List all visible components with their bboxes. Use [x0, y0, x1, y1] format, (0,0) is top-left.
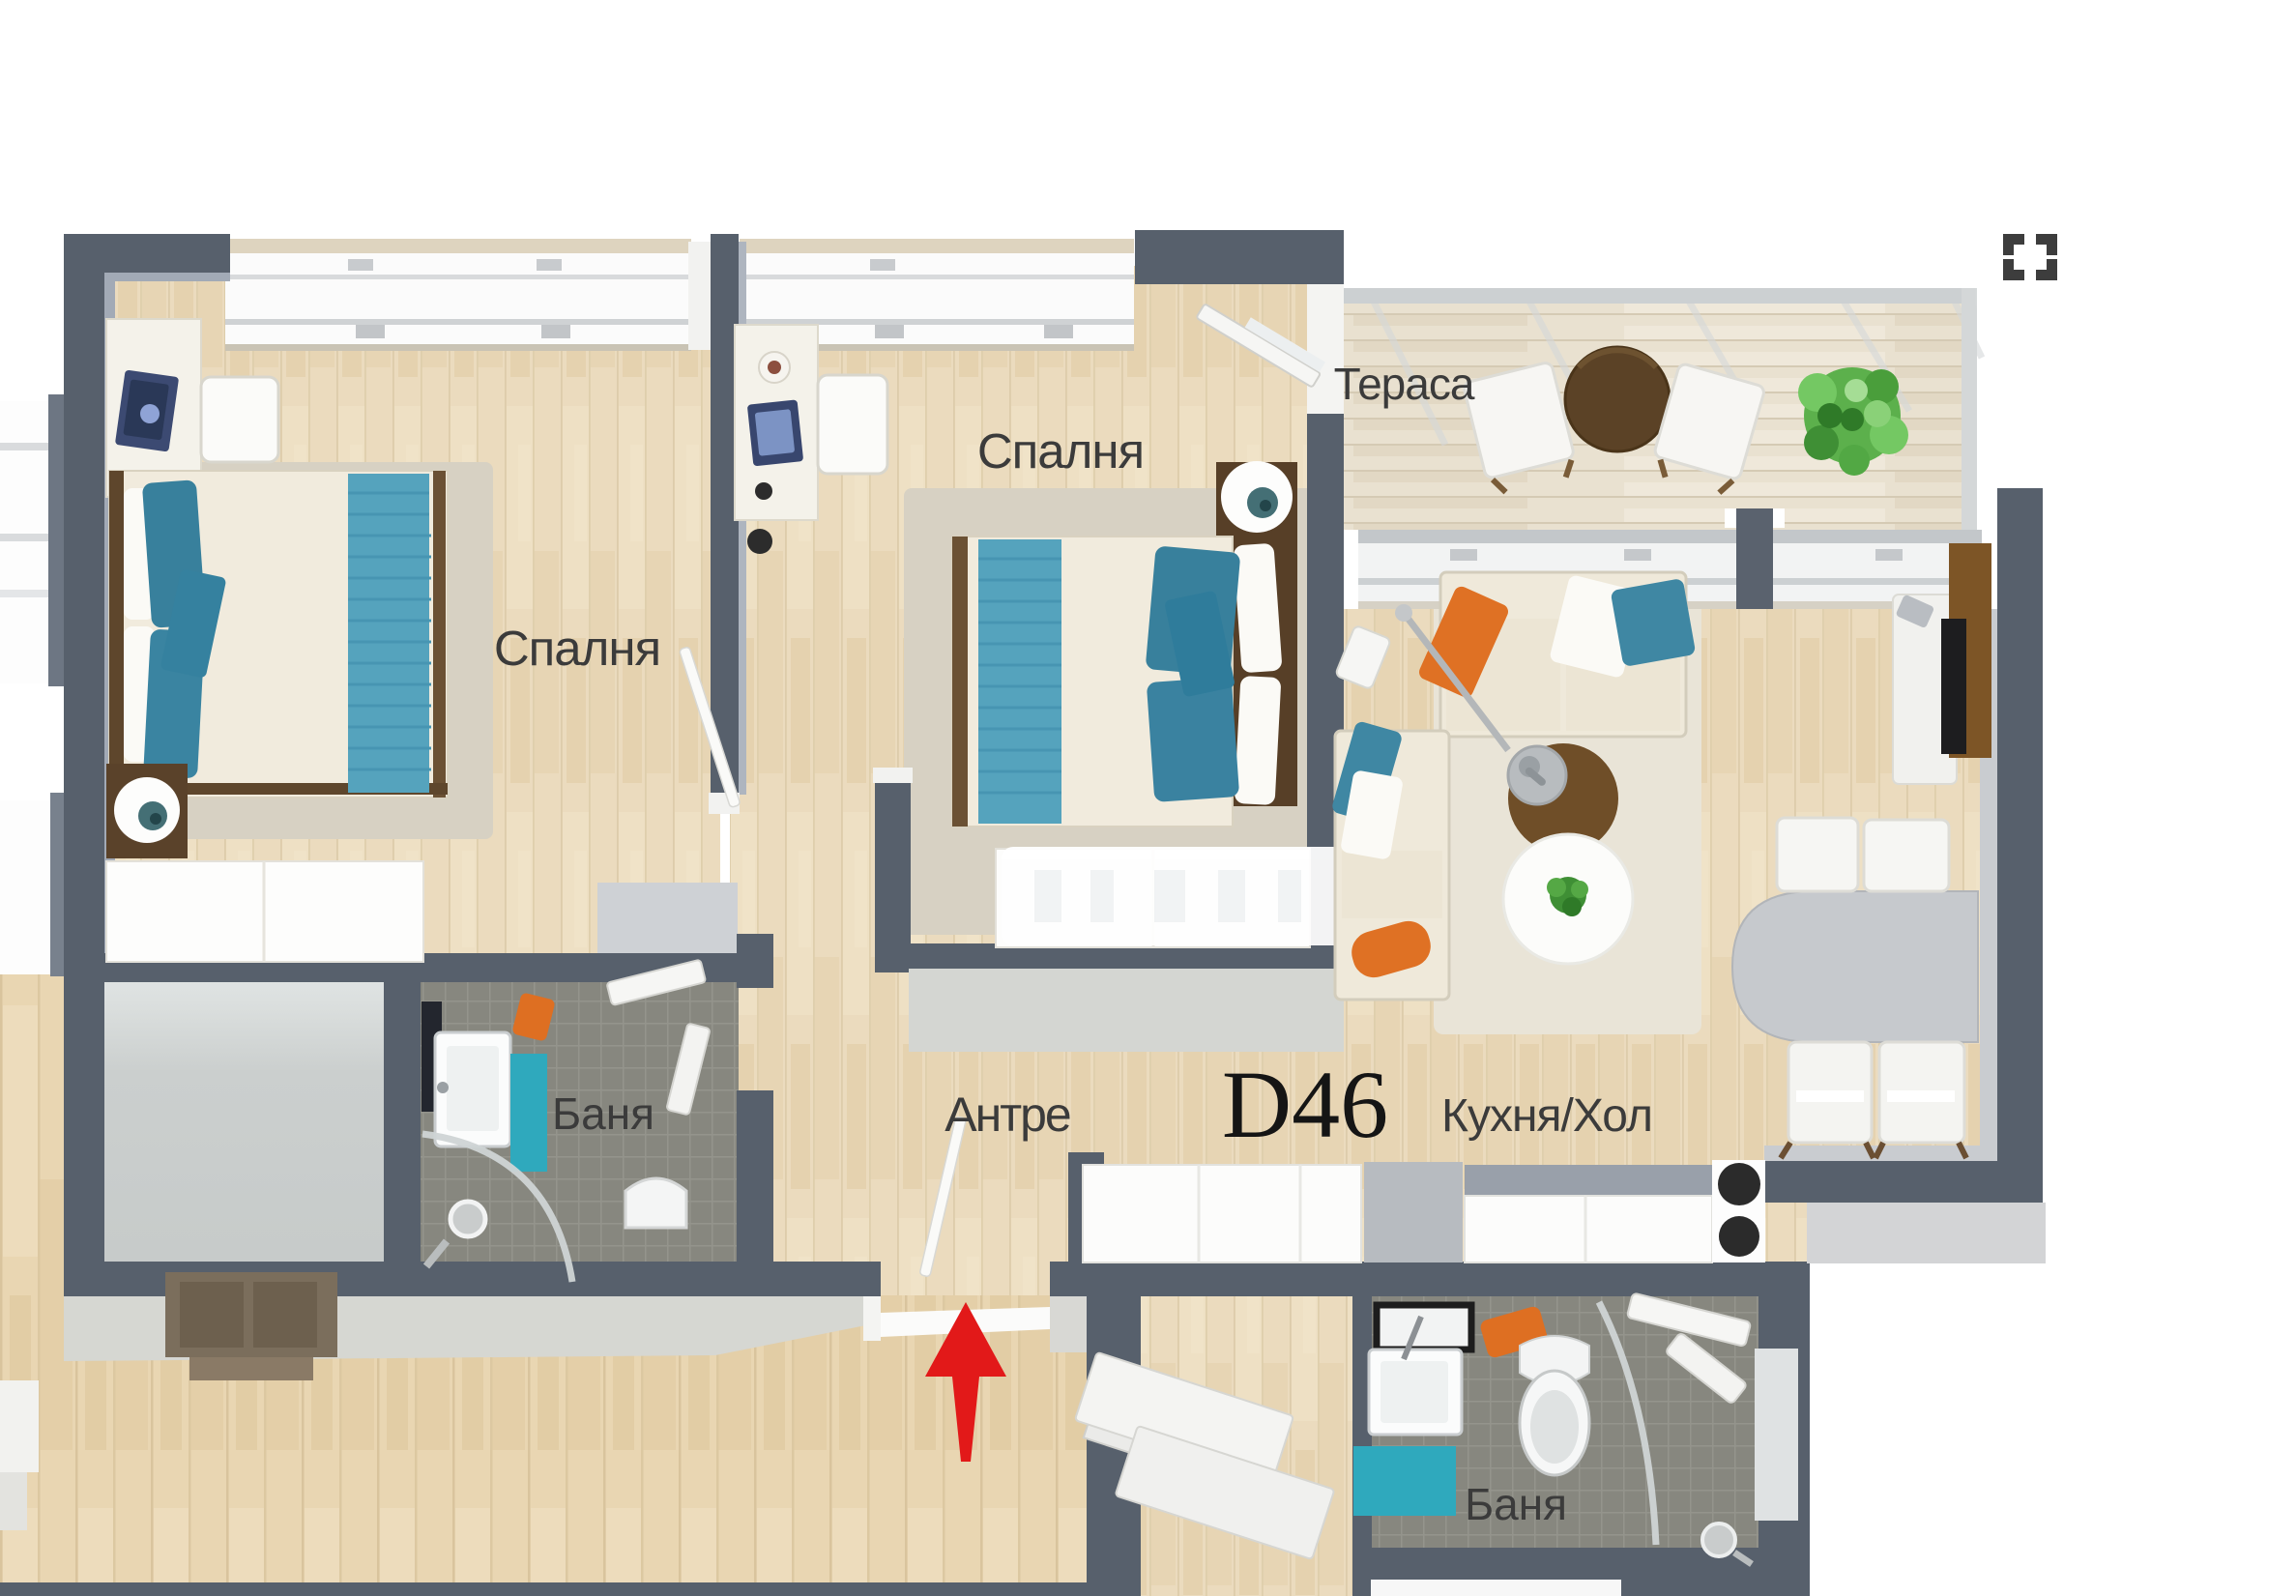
svg-text:Спалня: Спалня	[494, 621, 660, 676]
svg-text:Баня: Баня	[552, 1088, 654, 1139]
svg-text:Тераса: Тераса	[1334, 359, 1475, 409]
svg-text:D46: D46	[1222, 1051, 1388, 1158]
svg-text:Антре: Антре	[945, 1088, 1070, 1142]
svg-text:Баня: Баня	[1465, 1479, 1567, 1529]
svg-text:Кухня/Хол: Кухня/Хол	[1441, 1090, 1652, 1142]
svg-text:Спалня: Спалня	[977, 423, 1144, 479]
